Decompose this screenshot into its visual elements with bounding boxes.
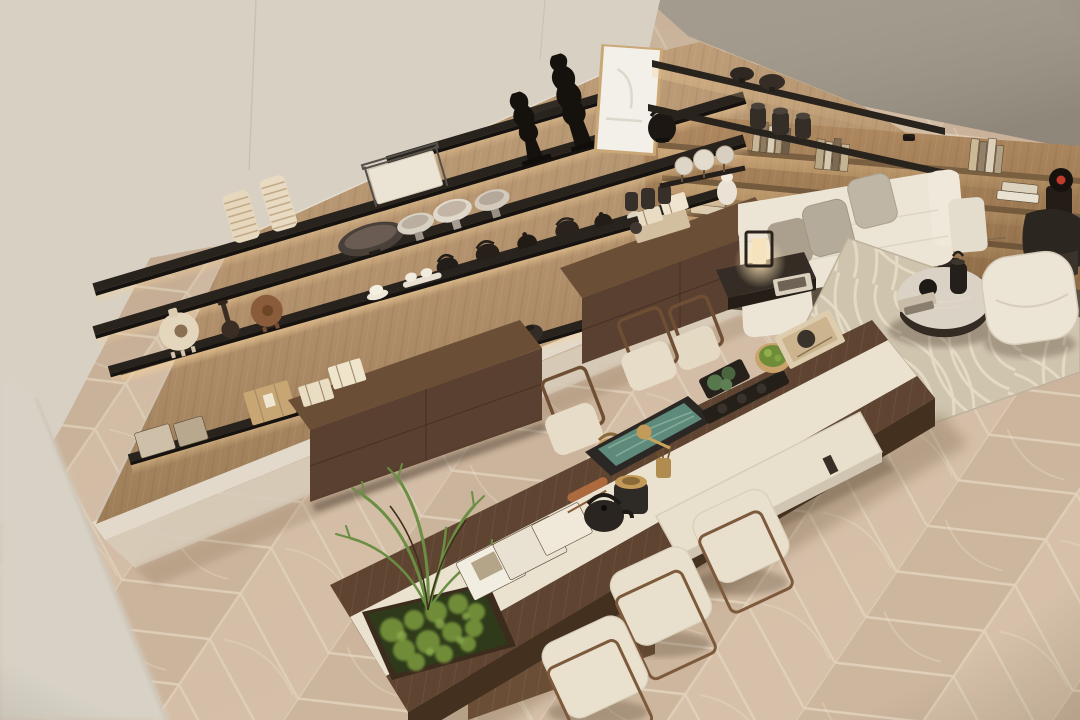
vignette (0, 0, 1080, 720)
scene-canvas (0, 0, 1080, 720)
tea-room-photo (0, 0, 1080, 720)
